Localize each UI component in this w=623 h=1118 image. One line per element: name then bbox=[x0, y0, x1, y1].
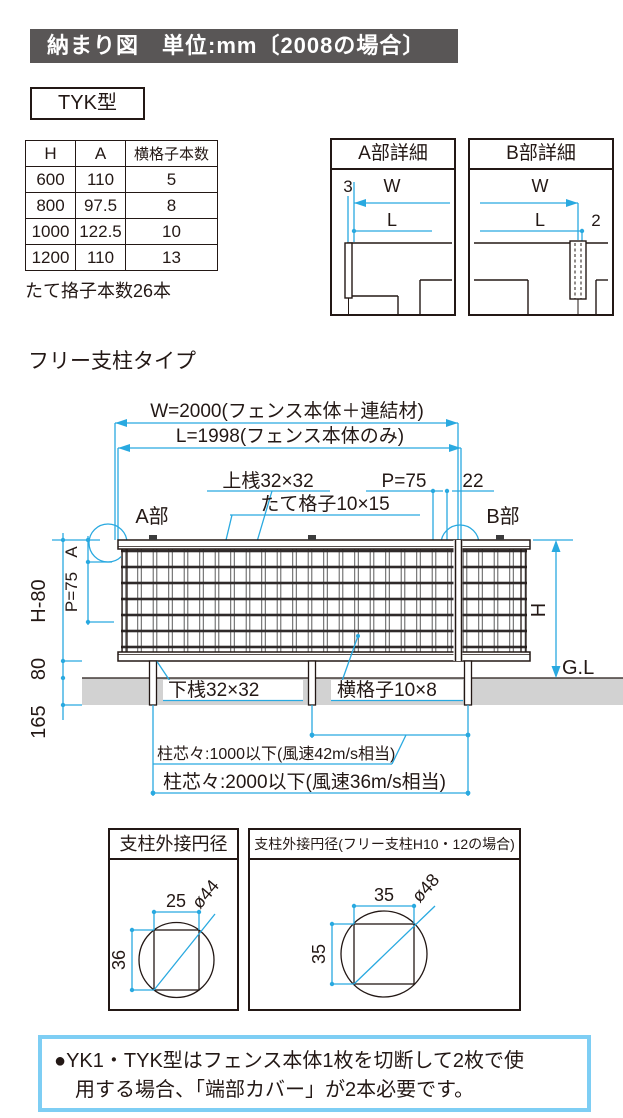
dim-p75: P=75 bbox=[62, 572, 81, 612]
dim-l-label: L bbox=[387, 210, 397, 230]
circle-detail-2-drawing: 35 35 ø48 bbox=[250, 860, 519, 1009]
fence-panel bbox=[118, 535, 530, 661]
table-header-row: H A 横格子本数 bbox=[26, 141, 218, 167]
width-dim: 25 bbox=[166, 891, 186, 911]
footnote-line-1: ●YK1・TYK型はフェンス本体1枚を切断して2枚で使 bbox=[54, 1047, 575, 1076]
vertical-lattice-label: たて格子10×15 bbox=[260, 493, 389, 515]
cell: 10 bbox=[126, 219, 218, 245]
dim-3-label: 3 bbox=[343, 177, 352, 196]
height-dimension: H G.L bbox=[528, 540, 594, 679]
cell: 600 bbox=[26, 167, 76, 193]
cell: 110 bbox=[76, 167, 126, 193]
post-circle-detail-2: 支柱外接円径(フリー支柱H10・12の場合) 35 35 ø48 bbox=[248, 828, 521, 1011]
col-header-h: H bbox=[26, 141, 76, 167]
b-part-label: B部 bbox=[486, 505, 519, 528]
detail-a-box: A部詳細 3 W L bbox=[330, 138, 456, 316]
cell: 800 bbox=[26, 193, 76, 219]
col-header-a: A bbox=[76, 141, 126, 167]
circle-detail-1-drawing: 25 36 ø44 bbox=[110, 860, 237, 1009]
bottom-rail bbox=[118, 652, 530, 661]
post-circle-detail-1: 支柱外接円径 25 36 ø44 bbox=[108, 828, 239, 1011]
dim-w-2000: W=2000(フェンス本体＋連結材) bbox=[150, 400, 424, 422]
cell: 8 bbox=[126, 193, 218, 219]
page: 納まり図 単位:mm〔2008の場合〕 TYK型 H A 横格子本数 600 1… bbox=[0, 0, 623, 1118]
cell: 1000 bbox=[26, 219, 76, 245]
dim-80: 80 bbox=[28, 658, 50, 680]
horizontal-lattice-label: 横格子10×8 bbox=[337, 679, 437, 701]
page-title: 納まり図 単位:mm〔2008の場合〕 bbox=[30, 29, 458, 63]
width-dim: 35 bbox=[374, 885, 394, 905]
a-part-label: A部 bbox=[135, 505, 168, 528]
col-header-count: 横格子本数 bbox=[126, 141, 218, 167]
dim-l-1998: L=1998(フェンス本体のみ) bbox=[176, 425, 404, 447]
vertical-lattice-note: たて挌子本数26本 bbox=[25, 277, 171, 303]
detail-b-drawing: W L 2 bbox=[470, 170, 612, 314]
circle-detail-2-title: 支柱外接円径(フリー支柱H10・12の場合) bbox=[250, 830, 519, 860]
detail-b-dimensions: W L 2 bbox=[480, 176, 601, 242]
circle-detail-1-title: 支柱外接円径 bbox=[110, 830, 237, 860]
cell: 97.5 bbox=[76, 193, 126, 219]
dim-w-label: W bbox=[384, 176, 401, 196]
diameter-dim: ø48 bbox=[408, 870, 444, 906]
detail-a-part bbox=[345, 243, 452, 314]
height-dim: 36 bbox=[110, 950, 129, 970]
cell: 13 bbox=[126, 245, 218, 271]
type-label: フリー支柱タイプ bbox=[28, 345, 196, 375]
dim-165: 165 bbox=[28, 705, 50, 738]
post bbox=[465, 661, 472, 705]
dim-a: A bbox=[62, 546, 81, 558]
diameter-dim: ø44 bbox=[188, 876, 223, 913]
detail-b-part bbox=[474, 241, 608, 314]
dim-h-minus-80: H-80 bbox=[28, 579, 50, 622]
cell: 5 bbox=[126, 167, 218, 193]
table-row: 600 110 5 bbox=[26, 167, 218, 193]
spec-table: H A 横格子本数 600 110 5 800 97.5 8 1000 122.… bbox=[25, 140, 218, 271]
dim-h-label: H bbox=[528, 603, 550, 617]
footnote-box: ●YK1・TYK型はフェンス本体1枚を切断して2枚で使 用する場合、「端部カバー… bbox=[38, 1035, 591, 1112]
dim-w-label: W bbox=[532, 176, 549, 196]
table-row: 1000 122.5 10 bbox=[26, 219, 218, 245]
post-cap bbox=[496, 535, 504, 540]
fence-mesh bbox=[121, 549, 527, 652]
footnote-line-2: 用する場合、「端部カバー」が2本必要です。 bbox=[54, 1076, 575, 1105]
post bbox=[309, 661, 316, 705]
post-cap bbox=[308, 535, 316, 540]
dim-l-label: L bbox=[535, 210, 545, 230]
gl-label: G.L bbox=[562, 657, 594, 679]
top-rail bbox=[118, 540, 530, 549]
post bbox=[150, 661, 157, 705]
model-label: TYK型 bbox=[30, 87, 145, 120]
top-rail-label: 上桟32×32 bbox=[222, 470, 313, 492]
dim-2-label: 2 bbox=[591, 211, 600, 230]
height-dim: 35 bbox=[309, 944, 329, 964]
table-row: 800 97.5 8 bbox=[26, 193, 218, 219]
table-row: 1200 110 13 bbox=[26, 245, 218, 271]
pitch-label: P=75 bbox=[382, 471, 427, 492]
post-cap bbox=[149, 535, 157, 540]
main-elevation-diagram: W=2000(フェンス本体＋連結材) L=1998(フェンス本体のみ) 上桟32… bbox=[0, 390, 623, 805]
detail-a-drawing: 3 W L bbox=[332, 170, 454, 314]
detail-a-dimensions: 3 W L bbox=[343, 176, 450, 242]
cell: 1200 bbox=[26, 245, 76, 271]
span-2000-note: 柱芯々:2000以下(風速36m/s相当) bbox=[163, 771, 446, 793]
span-1000-note: 柱芯々:1000以下(風速42m/s相当) bbox=[157, 745, 395, 763]
detail-b-title: B部詳細 bbox=[470, 140, 612, 170]
detail-a-title: A部詳細 bbox=[332, 140, 454, 170]
cell: 122.5 bbox=[76, 219, 126, 245]
cell: 110 bbox=[76, 245, 126, 271]
end-gap-label: 22 bbox=[462, 471, 483, 492]
circumscribed-circle bbox=[139, 923, 214, 998]
post-span-dimensions: 柱芯々:1000以下(風速42m/s相当) 柱芯々:2000以下(風速36m/s… bbox=[151, 705, 471, 796]
bottom-rail-label: 下桟32×32 bbox=[168, 679, 259, 701]
left-dimension-chain: H-80 80 165 A P=75 bbox=[28, 533, 114, 739]
detail-b-box: B部詳細 W L 2 bbox=[468, 138, 614, 316]
